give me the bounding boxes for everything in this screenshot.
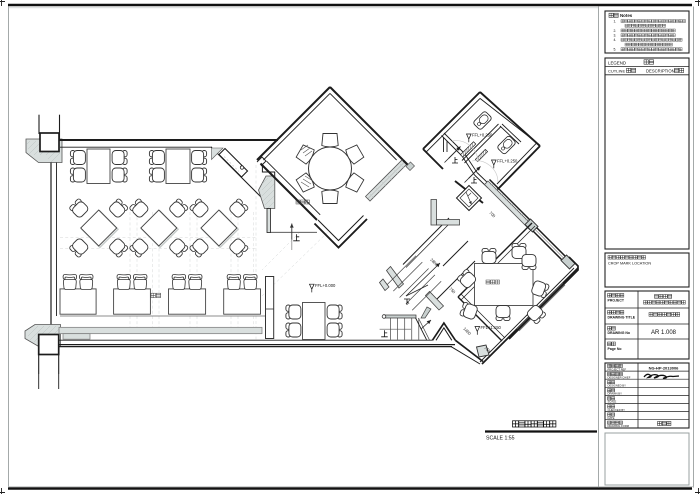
svg-text:3.: 3. [614,34,617,38]
svg-text:2.: 2. [614,29,617,33]
svg-text:PROJECT REF: PROJECT REF [608,367,627,371]
svg-text:PROJECT: PROJECT [608,299,625,303]
svg-text:DRAWING FORM: DRAWING FORM [608,424,630,428]
svg-text:FFL+1.150: FFL+1.150 [481,325,502,330]
svg-text:Notes: Notes [620,13,633,18]
svg-text:5.: 5. [614,48,617,52]
svg-text:DESCRIPTION: DESCRIPTION [646,69,675,74]
svg-text:1.: 1. [614,19,617,23]
svg-text:AR 1.008: AR 1.008 [651,330,677,336]
svg-text:DRAWING No: DRAWING No [608,331,631,335]
svg-text:4.: 4. [614,38,617,42]
svg-text:DATE: DATE [608,416,615,420]
svg-text:SCALE 1:55: SCALE 1:55 [486,436,515,442]
svg-text:CHECKED BY: CHECKED BY [608,408,626,412]
svg-text:FFL+0.000: FFL+0.000 [315,283,336,288]
svg-text:DRAWN BY: DRAWN BY [608,392,623,396]
svg-text:SCALE: SCALE [608,400,617,404]
svg-text:CUTLINE: CUTLINE [608,69,625,74]
svg-text:NG-HP-2013006: NG-HP-2013006 [649,365,680,370]
svg-text:DESIGNER CHIEF: DESIGNER CHIEF [608,375,631,379]
svg-text:LEGEND: LEGEND [608,60,626,65]
svg-text:FFL+0.250: FFL+0.250 [472,133,493,138]
svg-text:FFL+0.250: FFL+0.250 [497,159,518,164]
svg-text:CROP MARK LOCATION: CROP MARK LOCATION [608,262,651,266]
svg-text:DESIGNED BY: DESIGNED BY [608,384,627,388]
svg-text:DRAWING TITLE: DRAWING TITLE [608,316,636,320]
svg-text:Page No: Page No [608,347,622,351]
